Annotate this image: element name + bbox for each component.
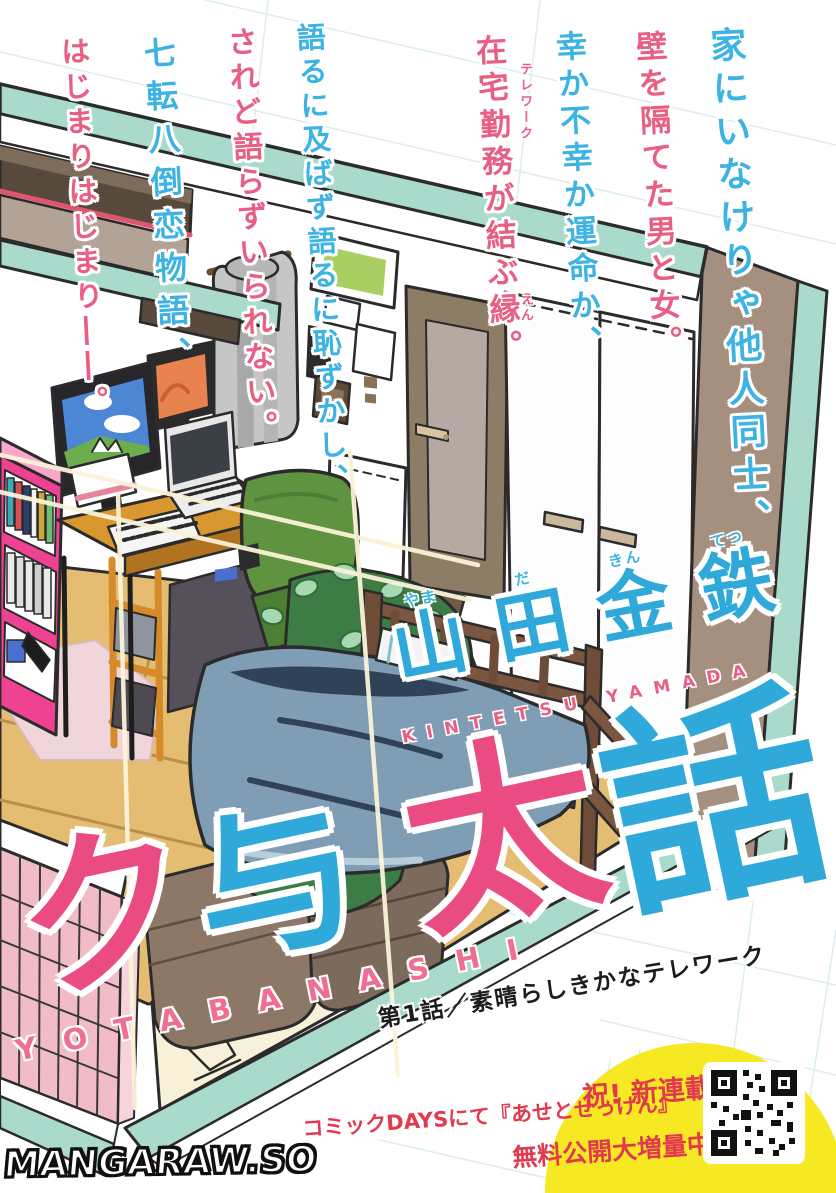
site-watermark: MANGARAW.SO	[2, 1139, 318, 1185]
author-char: だ 田	[485, 561, 576, 672]
manga-title-page: 家にいなけりゃ他人同士、 壁を隔てた男と女。 幸か不幸か運命か、 在宅勤務が結ぶ…	[0, 0, 836, 1193]
author-char: てつ 鉄	[689, 521, 780, 632]
title-glyph-yo: 与	[181, 789, 371, 979]
furigana-en: えん	[516, 292, 535, 324]
qr-code	[703, 1062, 805, 1164]
author-kanji: 田	[489, 582, 576, 672]
author-kanji: 山	[387, 601, 474, 691]
furigana-telework: テレワーク	[515, 62, 534, 142]
author-kanji: 金	[591, 562, 678, 652]
bookshelf	[0, 438, 62, 735]
author-kanji: 鉄	[693, 542, 780, 632]
title-glyph-wa: 話	[586, 674, 836, 935]
title-glyph-ku: ク	[2, 810, 210, 1018]
author-char: きん 金	[587, 541, 678, 652]
